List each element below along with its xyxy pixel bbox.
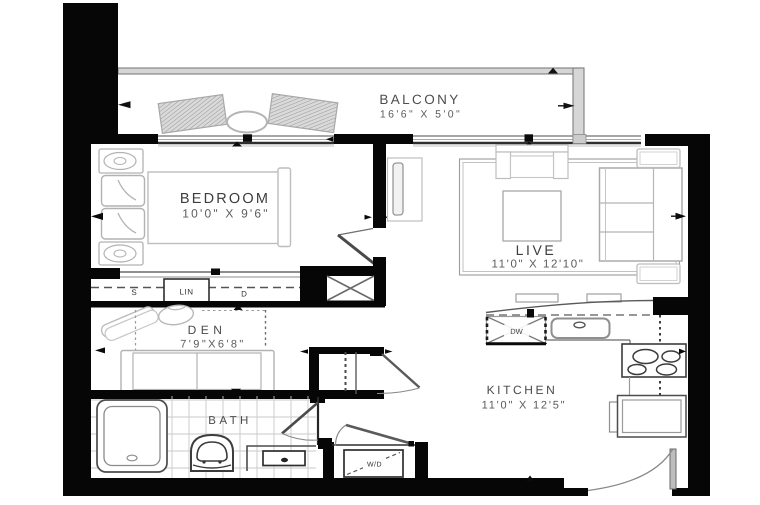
svg-text:11'0" X 12'10": 11'0" X 12'10" xyxy=(492,259,585,271)
svg-text:DW: DW xyxy=(510,327,523,336)
svg-text:LIVE: LIVE xyxy=(516,242,557,258)
svg-text:16'6" X 5'0": 16'6" X 5'0" xyxy=(380,109,462,121)
svg-text:S: S xyxy=(131,288,136,297)
svg-text:10'0" X 9'6": 10'0" X 9'6" xyxy=(182,207,270,221)
svg-text:DEN: DEN xyxy=(188,323,227,337)
svg-text:BEDROOM: BEDROOM xyxy=(180,191,270,207)
svg-text:LIN: LIN xyxy=(180,288,194,297)
svg-text:7'9"X6'8": 7'9"X6'8" xyxy=(180,339,245,351)
svg-text:11'0" X 12'5": 11'0" X 12'5" xyxy=(482,400,567,412)
svg-text:W/D: W/D xyxy=(367,461,382,469)
svg-text:D: D xyxy=(241,290,247,299)
svg-text:BALCONY: BALCONY xyxy=(379,92,460,107)
svg-text:BATH: BATH xyxy=(208,415,251,427)
svg-text:KITCHEN: KITCHEN xyxy=(487,383,558,397)
